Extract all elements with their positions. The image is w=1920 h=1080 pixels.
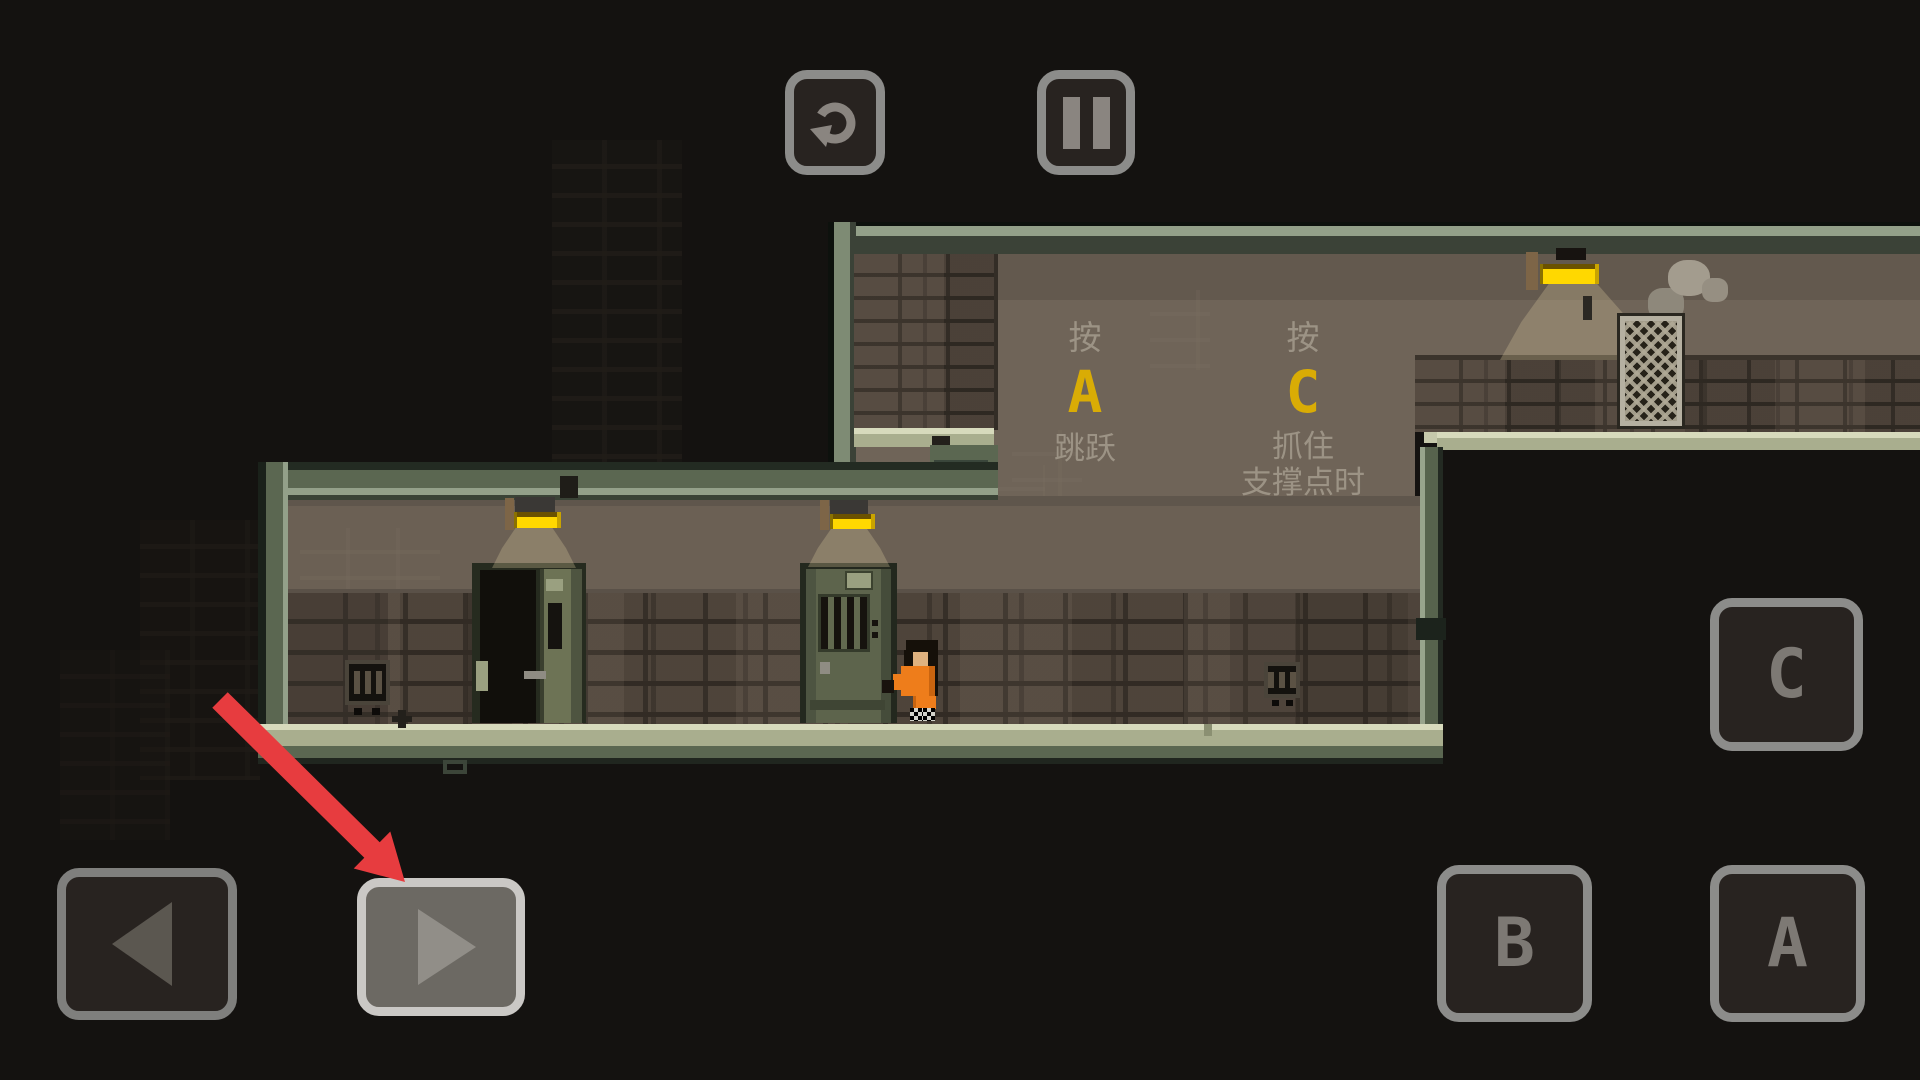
action-c-label: C [1766, 641, 1807, 709]
door-latch-plate [476, 661, 488, 691]
faint-brick-patch [300, 528, 440, 590]
action-a-button[interactable]: A [1710, 865, 1865, 1022]
lamp-bracket [1526, 252, 1538, 290]
floor-seam-notch [1204, 724, 1212, 736]
tutorial-grab-key: C [1210, 362, 1396, 422]
door-bolt [872, 632, 878, 638]
open-cell-door [472, 563, 586, 723]
door-plate [546, 579, 563, 591]
lamp-bulb [1540, 264, 1599, 284]
vent-bolt [1272, 700, 1279, 706]
player-shoe [923, 708, 935, 721]
tutorial-grab-line1: 抓住 [1210, 430, 1396, 464]
door-slot [548, 603, 562, 649]
tutorial-jump-action: 跳跃 [1000, 432, 1170, 466]
window-bar [854, 597, 860, 649]
lamp-bracket [820, 500, 829, 530]
vent-bar [1268, 672, 1274, 689]
lamp-bracket-top [515, 497, 555, 513]
window-bar [828, 597, 834, 649]
player-torso [901, 666, 935, 696]
player-arm [893, 674, 905, 690]
player-shoe [910, 708, 923, 721]
door-bolt [872, 620, 878, 626]
step-corner-trim [1424, 432, 1437, 443]
smoke-puff [1702, 278, 1728, 302]
door-barred-window [818, 594, 870, 652]
vent-bar [1279, 672, 1285, 689]
door-opening [480, 570, 536, 723]
game-screen: 按 A 跳跃 按 C 抓住 支撑点时 来释放 [0, 0, 1920, 1080]
vent-bolt [1286, 700, 1293, 706]
tutorial-jump-key: A [1000, 362, 1170, 422]
red-arrow-annotation [190, 670, 450, 910]
upper-room-left-frame [828, 222, 856, 500]
shaft-right-frame [1420, 447, 1443, 724]
lamp-bracket [505, 498, 514, 530]
pause-icon [1063, 97, 1080, 149]
ceiling-bracket [560, 476, 578, 498]
outer-wall-bricks [60, 650, 170, 840]
player-character [880, 638, 942, 724]
lamp-bulb [514, 512, 561, 528]
corridor-ceiling-frame [258, 462, 998, 500]
pause-button[interactable] [1037, 70, 1135, 175]
upper-room-top-frame [828, 222, 1920, 254]
restart-icon [807, 95, 863, 151]
player-fist [882, 680, 894, 693]
right-arrow-icon [418, 909, 476, 985]
left-arrow-icon [112, 902, 172, 986]
window-bar [841, 597, 847, 649]
action-b-label: B [1494, 910, 1535, 978]
restart-button[interactable] [785, 70, 885, 175]
lamp-bulb [830, 514, 875, 529]
wall-vent [1264, 662, 1300, 698]
corridor-brick-shade [1230, 593, 1422, 724]
right-floor-edge-mid [1437, 438, 1920, 450]
vent-bar [1290, 672, 1296, 689]
door-plate [845, 571, 873, 590]
door-panel [540, 569, 582, 723]
tutorial-jump-hint: 按 A 跳跃 [1000, 320, 1170, 466]
action-c-button[interactable]: C [1710, 598, 1863, 751]
tutorial-grab-press: 按 [1210, 320, 1396, 356]
frame-connector-box [1416, 618, 1446, 640]
door-kickplate [810, 700, 885, 710]
door-handle [524, 671, 546, 679]
lamp-bracket-top [830, 500, 868, 515]
tutorial-jump-press: 按 [1000, 320, 1170, 356]
pause-icon [1093, 97, 1110, 149]
door-handle [820, 662, 830, 674]
brick-shelf [854, 254, 998, 430]
hanging-nail [1583, 296, 1592, 320]
lamp-bracket-top [1556, 248, 1586, 260]
action-b-button[interactable]: B [1437, 865, 1592, 1022]
level-scene: 按 A 跳跃 按 C 抓住 支撑点时 来释放 [0, 0, 1920, 1080]
wire-basket [1620, 316, 1682, 426]
action-a-label: A [1767, 910, 1808, 978]
tutorial-grab-line2: 支撑点时 [1210, 466, 1396, 500]
